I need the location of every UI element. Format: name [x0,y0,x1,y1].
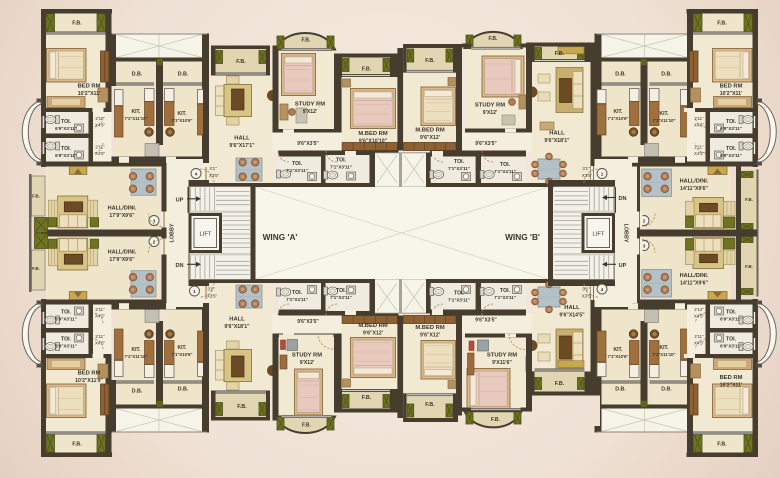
svg-text:9'6"X18'1": 9'6"X18'1" [544,138,570,144]
svg-text:2: 2 [153,240,156,245]
svg-text:BED RM: BED RM [720,84,743,90]
svg-text:7'1"X3'11": 7'1"X3'11" [448,166,470,171]
svg-text:KIT.: KIT. [614,109,624,115]
svg-text:TOI.: TOI. [454,291,465,297]
svg-text:TOI.: TOI. [336,288,347,294]
svg-text:6'9"X3'11": 6'9"X3'11" [55,344,77,349]
svg-text:F.B.: F.B. [72,21,82,27]
svg-text:TOI.: TOI. [500,288,511,294]
svg-text:F.B.: F.B. [489,36,499,42]
svg-text:F.B.: F.B. [32,194,40,199]
svg-text:WING 'A': WING 'A' [263,232,298,242]
svg-text:HALL: HALL [564,305,580,311]
svg-text:KIT.: KIT. [660,111,670,117]
svg-text:7'1"X10'6": 7'1"X10'6" [172,118,193,123]
svg-text:2'11": 2'11" [95,334,105,339]
svg-text:M.BED RM: M.BED RM [358,131,387,137]
svg-text:7'1"X3'11": 7'1"X3'11" [330,165,352,170]
svg-text:X4'5": X4'5" [694,151,704,156]
svg-text:9'6"X3'5": 9'6"X3'5" [297,319,319,325]
svg-text:9'6"X12': 9'6"X12' [420,333,440,339]
svg-text:X3'5": X3'5" [207,294,218,299]
svg-text:LIFT: LIFT [200,231,212,237]
svg-text:7'1"X10'6": 7'1"X10'6" [172,352,193,357]
svg-text:3'1": 3'1" [207,287,215,292]
svg-text:X3'5": X3'5" [582,173,593,178]
svg-text:F.B.: F.B. [302,38,312,44]
svg-text:2'11": 2'11" [95,145,105,150]
svg-text:2: 2 [643,219,646,224]
svg-text:6'9"X3'11": 6'9"X3'11" [720,317,742,322]
svg-text:KIT.: KIT. [132,347,142,353]
svg-text:STUDY RM: STUDY RM [295,102,325,108]
svg-text:TOI.: TOI. [292,290,303,296]
svg-text:BED RM: BED RM [78,371,101,377]
svg-text:3'1": 3'1" [582,287,590,292]
svg-text:M.BED RM: M.BED RM [415,128,444,134]
svg-text:7'1"X10'6": 7'1"X10'6" [608,116,629,121]
svg-text:7'1"X11'10": 7'1"X11'10" [124,354,147,359]
svg-text:X4'5": X4'5" [694,123,704,128]
svg-text:LOBBY: LOBBY [623,224,629,243]
svg-text:7'1"X3'11": 7'1"X3'11" [330,295,352,300]
svg-text:2'12": 2'12" [694,307,704,312]
svg-text:D.B.: D.B. [132,389,143,395]
svg-text:7'1"X3'11": 7'1"X3'11" [448,298,470,303]
svg-text:KIT.: KIT. [132,109,142,115]
svg-text:UP: UP [176,197,184,203]
svg-text:14'11"X9'6": 14'11"X9'6" [680,281,708,287]
svg-text:6'9"X3'11": 6'9"X3'11" [720,153,742,158]
svg-text:10'2"X11': 10'2"X11' [720,91,743,97]
svg-text:2'11": 2'11" [694,334,704,339]
svg-text:TOI.: TOI. [61,337,72,343]
svg-text:X4'5": X4'5" [95,314,105,319]
svg-text:10'2"X11': 10'2"X11' [78,91,101,97]
svg-text:7'1"X3'11": 7'1"X3'11" [286,297,308,302]
svg-text:F.B.: F.B. [491,417,501,423]
svg-text:TOI.: TOI. [726,337,737,343]
svg-text:17'9"X9'6": 17'9"X9'6" [109,213,135,219]
svg-text:9'6"X12': 9'6"X12' [420,135,440,141]
svg-text:TOI.: TOI. [61,310,72,316]
svg-text:HALL: HALL [229,317,245,323]
svg-text:6'9"X3'11": 6'9"X3'11" [55,317,77,322]
svg-text:M.BED RM: M.BED RM [415,325,444,331]
svg-text:9'6"X3'5": 9'6"X3'5" [475,141,497,147]
svg-text:X4'5": X4'5" [694,341,704,346]
svg-text:TOI.: TOI. [336,158,347,164]
svg-text:4: 4 [601,287,604,292]
svg-text:D.B.: D.B. [615,72,626,78]
svg-text:KIT.: KIT. [178,345,188,351]
svg-text:TOI.: TOI. [726,146,737,152]
svg-text:D.B.: D.B. [178,72,189,78]
svg-text:F.B.: F.B. [302,423,312,429]
svg-text:10'2"X11': 10'2"X11' [720,383,743,389]
svg-text:9'6"X10'10": 9'6"X10'10" [359,139,388,145]
svg-text:7'1"X3'11": 7'1"X3'11" [494,295,516,300]
svg-text:7'1"X3'11": 7'1"X3'11" [286,168,308,173]
svg-text:9'6"X12': 9'6"X12' [363,331,383,337]
svg-text:F.B.: F.B. [236,59,246,65]
svg-text:7'1"X3'11": 7'1"X3'11" [494,169,516,174]
svg-text:X4'5": X4'5" [95,151,105,156]
svg-text:F.B.: F.B. [237,404,247,410]
svg-text:TOI.: TOI. [61,119,72,125]
svg-text:BED RM: BED RM [78,84,101,90]
svg-text:D.B.: D.B. [178,387,189,393]
svg-text:LOBBY: LOBBY [170,223,176,242]
svg-text:STUDY RM: STUDY RM [292,353,322,359]
svg-text:X4'5": X4'5" [95,341,105,346]
svg-text:1: 1 [193,289,196,294]
svg-text:3'1": 3'1" [209,166,217,171]
svg-text:D.B.: D.B. [615,387,626,393]
svg-text:BED RM: BED RM [720,375,743,381]
svg-text:6'9"X3'11": 6'9"X3'11" [720,344,742,349]
svg-text:3'1": 3'1" [582,166,590,171]
svg-text:HALL: HALL [549,131,565,137]
svg-text:F.B.: F.B. [425,402,435,408]
svg-text:HALL/DINI.: HALL/DINI. [108,206,137,212]
svg-text:TOI.: TOI. [454,159,465,165]
svg-text:4: 4 [195,172,198,177]
svg-text:KIT.: KIT. [660,345,670,351]
svg-text:STUDY RM: STUDY RM [475,103,505,109]
svg-text:D.B.: D.B. [661,72,672,78]
svg-text:X3'5": X3'5" [582,294,593,299]
svg-text:9'6"X14'5": 9'6"X14'5" [559,313,585,319]
svg-text:KIT.: KIT. [614,347,624,353]
svg-text:9'X12': 9'X12' [303,109,318,115]
svg-text:7'1"X10'6": 7'1"X10'6" [608,354,629,359]
svg-text:F.B.: F.B. [717,442,727,448]
svg-text:TOI.: TOI. [726,119,737,125]
svg-text:6'9"X3'11": 6'9"X3'11" [720,126,742,131]
svg-text:D.B.: D.B. [132,72,143,78]
svg-text:HALL/DINI.: HALL/DINI. [680,273,709,279]
svg-text:KIT.: KIT. [178,111,188,117]
svg-text:6'9"X3'11": 6'9"X3'11" [55,153,77,158]
svg-text:2'11": 2'11" [694,145,704,150]
svg-text:6'9"X3'11": 6'9"X3'11" [55,126,77,131]
svg-text:10'2"X11'9": 10'2"X11'9" [75,378,103,384]
svg-text:TOI.: TOI. [292,161,303,167]
svg-text:WING 'B': WING 'B' [505,232,540,242]
svg-text:F.B.: F.B. [362,395,372,401]
svg-text:9'6"X18'1": 9'6"X18'1" [224,324,250,330]
svg-text:1: 1 [601,172,604,177]
svg-text:M.BED RM: M.BED RM [358,323,387,329]
svg-text:9'X11'6": 9'X11'6" [492,360,512,366]
svg-text:2'11": 2'11" [95,307,105,312]
svg-text:X3'5": X3'5" [209,173,220,178]
svg-text:X4'5": X4'5" [95,123,105,128]
svg-text:STUDY RM: STUDY RM [487,353,517,359]
svg-text:F.B.: F.B. [32,266,40,271]
svg-text:7'1"X11'10": 7'1"X11'10" [124,116,147,121]
svg-text:2'11": 2'11" [95,116,105,121]
svg-text:2'11": 2'11" [694,116,704,121]
svg-text:TOI.: TOI. [61,146,72,152]
svg-text:F.B.: F.B. [745,264,753,269]
svg-text:7'1"X11'10": 7'1"X11'10" [652,352,675,357]
svg-text:X4'5": X4'5" [694,314,704,319]
svg-text:F.B.: F.B. [717,21,727,27]
svg-text:F.B.: F.B. [555,51,565,57]
svg-text:DN: DN [618,196,626,202]
svg-text:HALL/DINI.: HALL/DINI. [108,250,137,256]
svg-text:HALL/DINI.: HALL/DINI. [680,179,709,185]
svg-text:17'9"X9'6": 17'9"X9'6" [109,257,135,263]
svg-text:3: 3 [153,219,156,224]
svg-text:14'11"X9'6": 14'11"X9'6" [680,186,708,192]
svg-text:7'1"X11'10": 7'1"X11'10" [652,118,675,123]
svg-text:HALL: HALL [234,136,250,142]
svg-text:TOI.: TOI. [726,310,737,316]
svg-text:F.B.: F.B. [425,58,435,64]
svg-text:3: 3 [643,244,646,249]
svg-text:9'6"X3'5": 9'6"X3'5" [297,141,319,147]
svg-text:9'6"X17'1": 9'6"X17'1" [229,143,255,149]
svg-text:D.B.: D.B. [661,387,672,393]
svg-text:9'X12': 9'X12' [300,360,315,366]
svg-text:TOI.: TOI. [500,162,511,168]
svg-text:F.B.: F.B. [72,442,82,448]
svg-text:DN: DN [175,263,183,269]
svg-text:F.B.: F.B. [555,381,565,387]
svg-text:9'6"X3'5": 9'6"X3'5" [475,318,497,324]
svg-text:9'X12': 9'X12' [483,110,498,116]
svg-text:UP: UP [619,263,627,269]
svg-text:F.B.: F.B. [362,67,372,73]
svg-text:F.B.: F.B. [745,197,753,202]
svg-text:LIFT: LIFT [593,231,605,237]
